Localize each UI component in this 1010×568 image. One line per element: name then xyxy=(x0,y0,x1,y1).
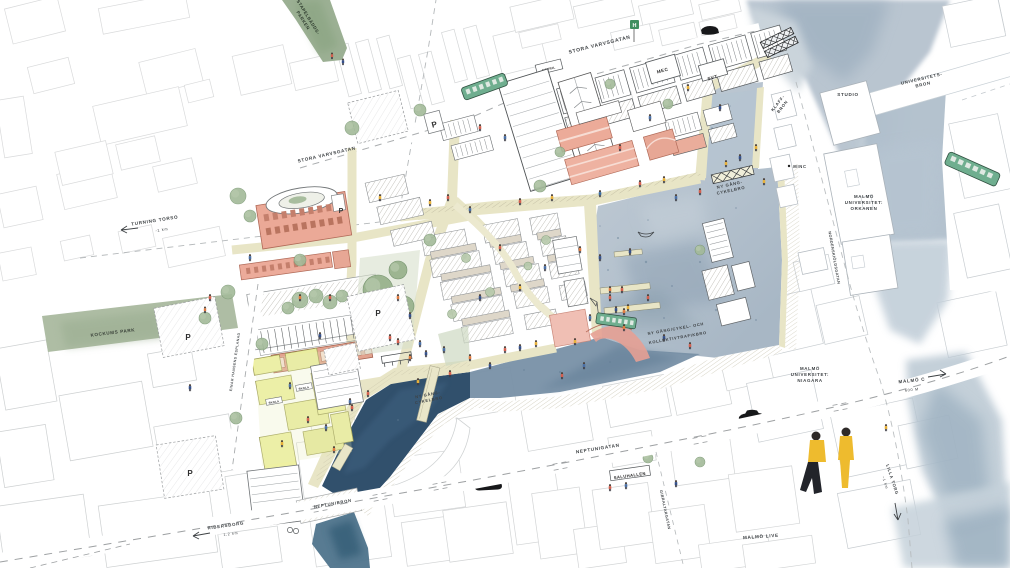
svg-text:MALMÖ: MALMÖ xyxy=(800,366,820,371)
svg-text:STUDIO: STUDIO xyxy=(837,92,859,97)
svg-text:ORKANEN: ORKANEN xyxy=(850,206,877,211)
svg-text:UNIVERSITET:: UNIVERSITET: xyxy=(791,372,829,377)
svg-text:NIAGARA: NIAGARA xyxy=(797,378,823,383)
svg-text:UNIVERSITET:: UNIVERSITET: xyxy=(845,200,883,205)
svg-text:MALMÖ: MALMÖ xyxy=(854,194,874,199)
svg-text:P: P xyxy=(185,333,191,342)
svg-text:P: P xyxy=(375,309,381,318)
svg-text:H: H xyxy=(633,23,637,29)
svg-text:P: P xyxy=(339,208,344,215)
svg-text:P: P xyxy=(187,469,193,478)
svg-text:MINC: MINC xyxy=(793,164,807,169)
